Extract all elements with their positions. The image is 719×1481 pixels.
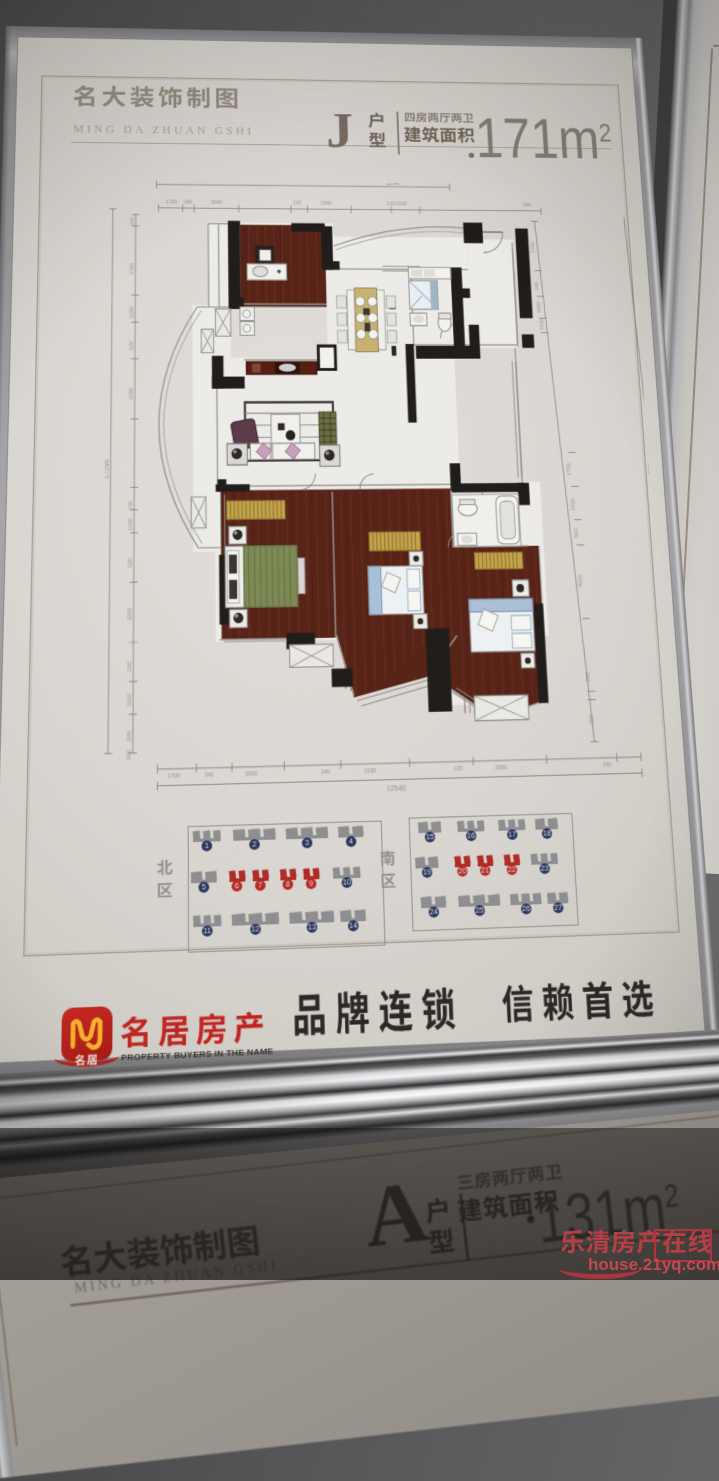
svg-text:3180: 3180 bbox=[364, 768, 377, 776]
svg-text:19: 19 bbox=[423, 869, 432, 878]
svg-text:7: 7 bbox=[258, 881, 263, 890]
svg-text:11: 11 bbox=[203, 927, 211, 936]
svg-text:240: 240 bbox=[128, 500, 135, 510]
svg-text:1600: 1600 bbox=[536, 301, 542, 313]
svg-text:240: 240 bbox=[603, 762, 613, 769]
svg-text:12: 12 bbox=[251, 925, 260, 934]
svg-text:240: 240 bbox=[321, 769, 331, 777]
svg-text:1810: 1810 bbox=[127, 693, 134, 707]
svg-text:3130: 3130 bbox=[396, 201, 408, 207]
svg-text:4260: 4260 bbox=[128, 387, 134, 399]
svg-text:240: 240 bbox=[184, 199, 193, 205]
svg-text:600: 600 bbox=[589, 714, 595, 724]
svg-text:13: 13 bbox=[308, 923, 317, 932]
svg-text:120: 120 bbox=[293, 200, 302, 206]
svg-text:27: 27 bbox=[554, 904, 563, 913]
svg-text:1700: 1700 bbox=[168, 773, 181, 781]
svg-text:1700: 1700 bbox=[166, 199, 178, 205]
svg-text:1040: 1040 bbox=[539, 318, 545, 330]
svg-text:520: 520 bbox=[127, 558, 134, 568]
svg-text:15: 15 bbox=[426, 833, 435, 841]
svg-text:4560: 4560 bbox=[578, 574, 584, 587]
svg-text:120: 120 bbox=[454, 765, 464, 772]
svg-text:20: 20 bbox=[458, 867, 467, 876]
svg-text:9: 9 bbox=[309, 880, 314, 889]
svg-text:17340: 17340 bbox=[648, 455, 655, 475]
svg-text:3260: 3260 bbox=[245, 771, 258, 779]
svg-text:120: 120 bbox=[387, 201, 396, 207]
svg-text:21: 21 bbox=[481, 867, 490, 876]
svg-text:500: 500 bbox=[574, 528, 580, 538]
svg-text:1750: 1750 bbox=[566, 463, 572, 476]
svg-text:245: 245 bbox=[204, 772, 214, 780]
svg-text:1620: 1620 bbox=[570, 498, 576, 511]
svg-text:23: 23 bbox=[541, 865, 550, 874]
svg-text:22: 22 bbox=[508, 866, 517, 875]
svg-text:12540: 12540 bbox=[387, 784, 407, 793]
svg-text:240: 240 bbox=[585, 672, 591, 682]
svg-text:17: 17 bbox=[508, 831, 517, 839]
svg-text:24: 24 bbox=[430, 908, 439, 917]
svg-text:18: 18 bbox=[543, 830, 552, 838]
svg-text:240: 240 bbox=[534, 281, 540, 290]
svg-text:245: 245 bbox=[127, 661, 134, 671]
svg-text:3: 3 bbox=[305, 839, 310, 847]
svg-text:14: 14 bbox=[349, 922, 358, 931]
svg-text:3040: 3040 bbox=[211, 200, 223, 206]
svg-text:10: 10 bbox=[343, 879, 352, 888]
svg-text:1: 1 bbox=[205, 842, 210, 850]
svg-text:6: 6 bbox=[235, 882, 240, 891]
svg-text:245: 245 bbox=[130, 217, 136, 226]
svg-text:1100: 1100 bbox=[128, 518, 135, 531]
svg-text:245: 245 bbox=[126, 730, 133, 741]
svg-text:17290: 17290 bbox=[103, 459, 111, 480]
svg-text:2390: 2390 bbox=[320, 201, 332, 207]
svg-text:25: 25 bbox=[475, 907, 484, 916]
svg-text:1750: 1750 bbox=[530, 241, 536, 253]
svg-text:26: 26 bbox=[522, 905, 531, 914]
svg-text:2150: 2150 bbox=[129, 306, 135, 318]
svg-text:8: 8 bbox=[286, 881, 291, 890]
svg-text:2760: 2760 bbox=[129, 263, 135, 275]
svg-text:2: 2 bbox=[252, 841, 257, 849]
svg-text:4: 4 bbox=[349, 838, 354, 846]
svg-text:5: 5 bbox=[202, 883, 207, 892]
svg-text:16: 16 bbox=[467, 832, 476, 840]
svg-text:3200: 3200 bbox=[127, 607, 134, 620]
svg-text:600: 600 bbox=[126, 749, 133, 760]
svg-text:240: 240 bbox=[523, 202, 532, 208]
svg-text:520: 520 bbox=[129, 341, 135, 350]
svg-text:3360: 3360 bbox=[495, 764, 508, 772]
